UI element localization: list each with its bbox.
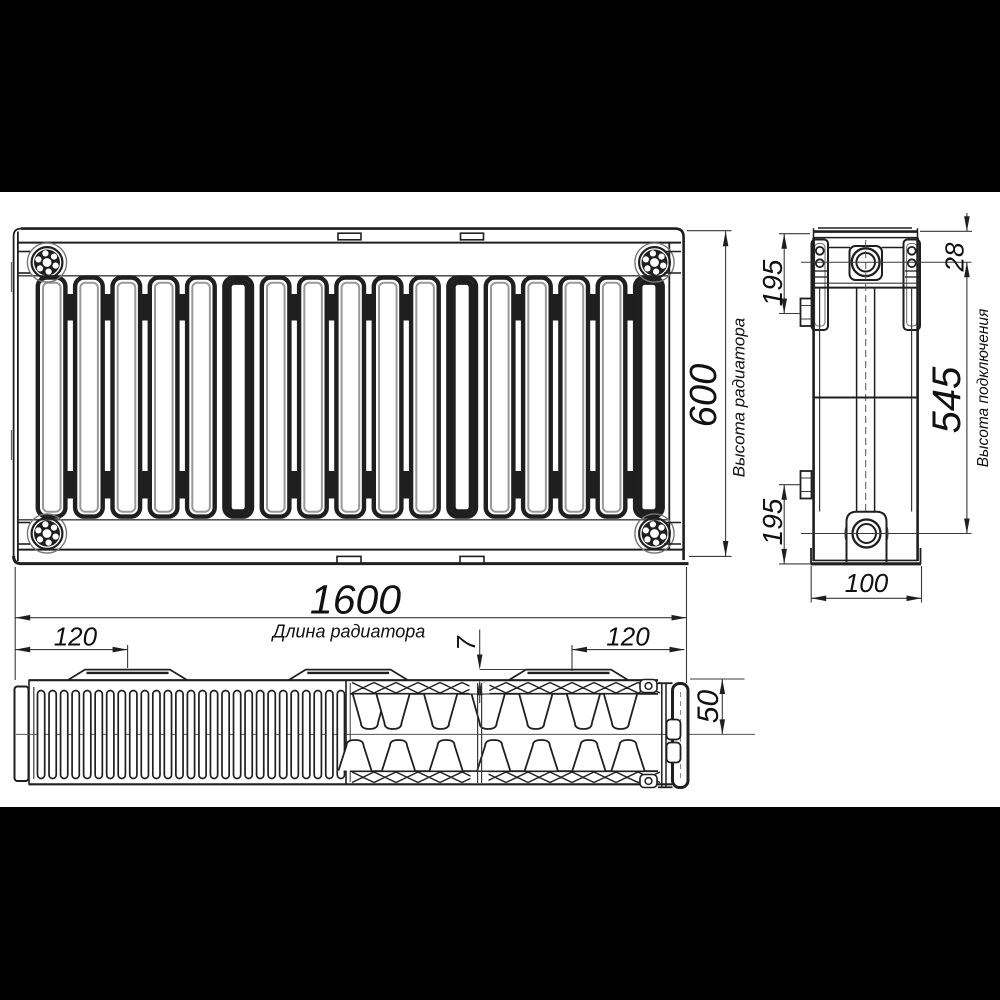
svg-text:195: 195 [757,498,788,545]
svg-text:1600: 1600 [310,577,401,623]
svg-text:Высота подключения: Высота подключения [975,309,992,468]
svg-text:195: 195 [757,259,788,306]
svg-text:7: 7 [451,635,481,651]
svg-text:120: 120 [606,622,650,652]
svg-text:545: 545 [925,366,969,433]
svg-text:Длина радиатора: Длина радиатора [271,622,426,642]
svg-text:120: 120 [54,621,98,651]
svg-text:Высота радиатора: Высота радиатора [730,318,749,478]
svg-text:600: 600 [683,364,725,427]
svg-text:100: 100 [845,568,889,598]
svg-text:28: 28 [940,242,970,272]
svg-text:50: 50 [692,690,725,724]
